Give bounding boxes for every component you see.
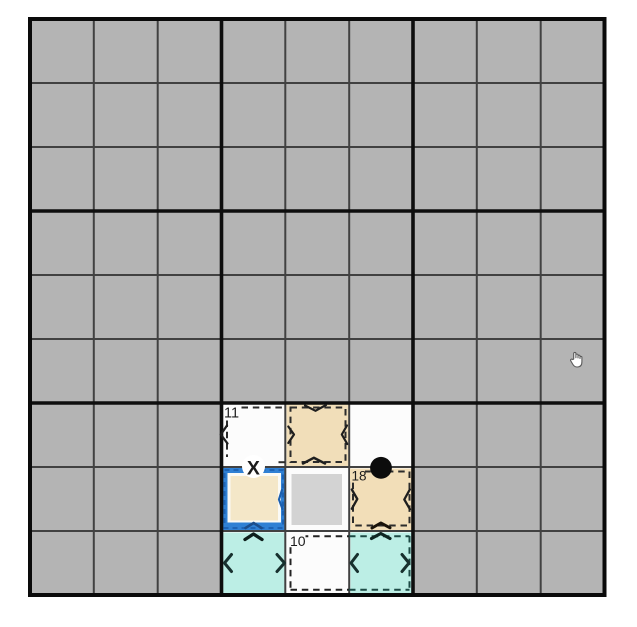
svg-text:X: X: [247, 458, 260, 480]
svg-text:11: 11: [224, 406, 239, 422]
svg-text:18: 18: [352, 469, 367, 484]
svg-text:10: 10: [290, 533, 306, 549]
